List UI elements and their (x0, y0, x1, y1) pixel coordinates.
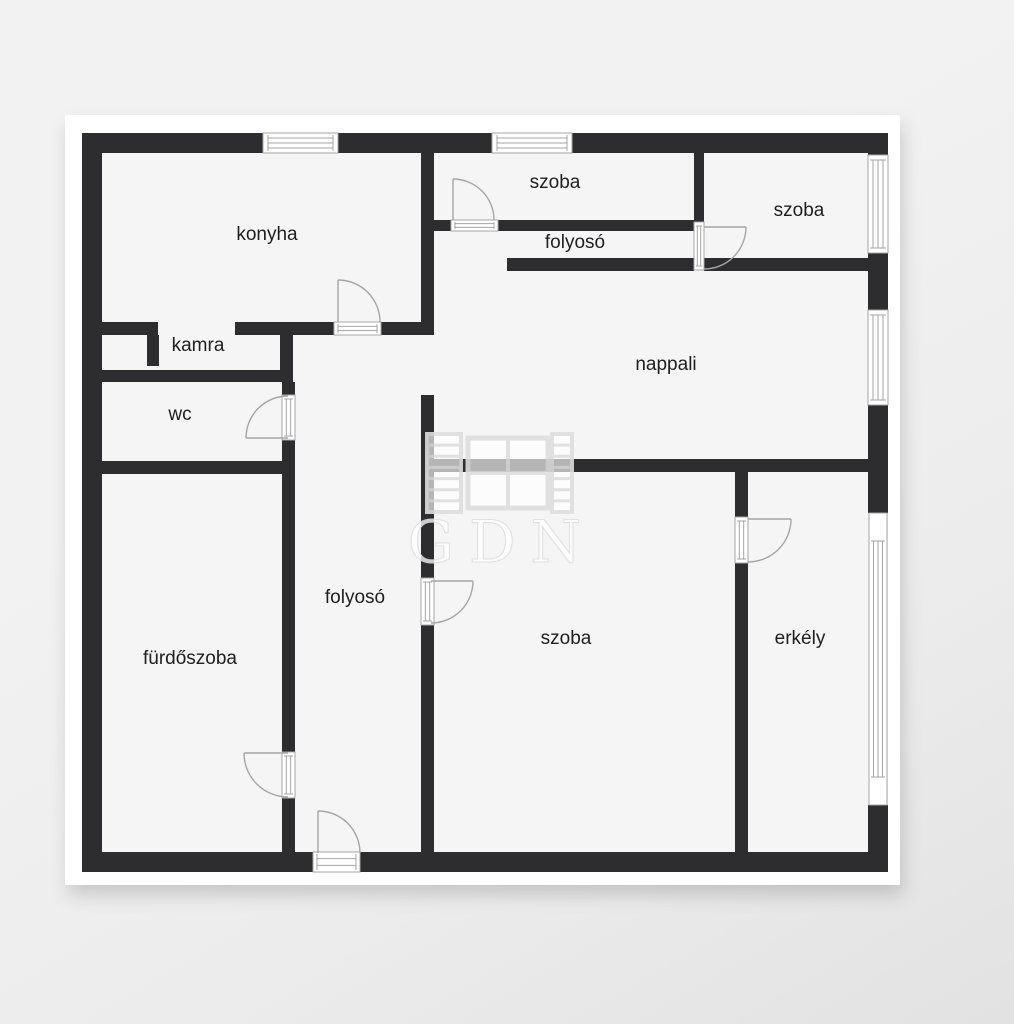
wall (421, 153, 434, 335)
door-threshold (282, 752, 295, 798)
room-label: fürdőszoba (143, 648, 237, 669)
wall (147, 335, 159, 366)
room-label: szoba (541, 628, 592, 649)
wall (338, 133, 492, 153)
room-label: szoba (530, 172, 581, 193)
wall (235, 322, 334, 335)
wall (100, 322, 158, 335)
wall (282, 798, 295, 852)
window (868, 310, 888, 405)
door-threshold (694, 222, 704, 270)
room-label: wc (167, 404, 191, 425)
wall (280, 335, 293, 372)
window (868, 155, 888, 253)
door-threshold (451, 220, 498, 231)
room-label: kamra (172, 335, 225, 356)
wall (421, 625, 434, 852)
window (263, 133, 338, 153)
room-label: folyosó (545, 232, 605, 253)
watermark-text: GDN (408, 508, 597, 576)
gdn-watermark: GDN (408, 434, 597, 576)
wall (868, 805, 888, 872)
room-label: erkély (775, 628, 826, 649)
room-label: szoba (774, 200, 825, 221)
window (492, 133, 572, 153)
door-threshold (421, 578, 434, 625)
room-label: folyosó (325, 587, 385, 608)
wall (100, 461, 282, 474)
wall (572, 133, 888, 153)
wall (282, 382, 295, 395)
room-label: konyha (236, 224, 298, 245)
wall (360, 852, 888, 872)
wall (868, 253, 888, 310)
wall (498, 220, 694, 231)
wall (421, 220, 451, 231)
wall (282, 440, 295, 752)
door-threshold (334, 322, 381, 335)
room-label: nappali (635, 354, 696, 375)
wall (704, 258, 868, 271)
wall (82, 852, 313, 872)
wall (868, 133, 888, 155)
wall (507, 258, 694, 271)
wall (82, 133, 102, 872)
floorplan: GDNkonyhaszobafolyosószobanappalikamrawc… (0, 0, 1014, 1024)
door-threshold (282, 395, 295, 440)
wall (82, 133, 263, 153)
wall (100, 370, 293, 382)
page-background: GDNkonyhaszobafolyosószobanappalikamrawc… (0, 0, 1014, 1024)
wall (694, 153, 704, 222)
wall (735, 472, 748, 517)
wall (381, 322, 434, 335)
door-threshold (313, 852, 360, 872)
window (869, 513, 887, 805)
wall (735, 563, 748, 852)
wall (868, 405, 888, 513)
door-threshold (735, 517, 748, 563)
